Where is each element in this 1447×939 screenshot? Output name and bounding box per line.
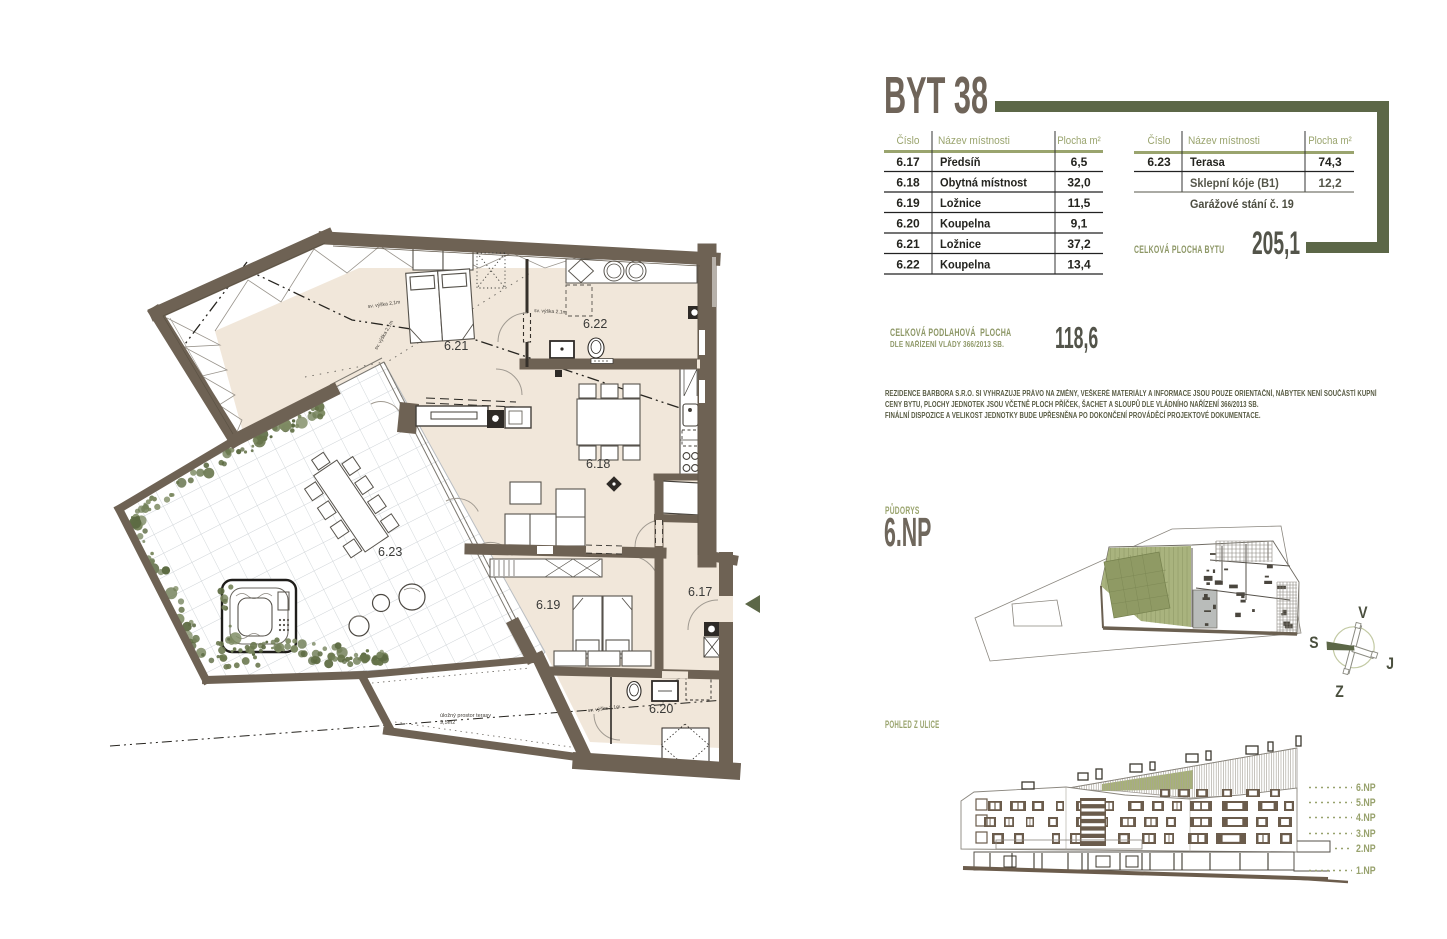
svg-text:6.22: 6.22 xyxy=(896,258,920,272)
svg-text:12,2: 12,2 xyxy=(1318,176,1342,190)
svg-text:6.20: 6.20 xyxy=(649,702,673,716)
svg-text:Předsíň: Předsíň xyxy=(940,157,980,169)
svg-text:9,1: 9,1 xyxy=(1071,217,1088,231)
svg-text:Obytná místnost: Obytná místnost xyxy=(940,177,1027,189)
svg-text:Sklepní kóje (B1): Sklepní kóje (B1) xyxy=(1190,178,1279,190)
svg-text:Plocha m²: Plocha m² xyxy=(1308,136,1352,148)
svg-text:6.17: 6.17 xyxy=(688,585,712,599)
svg-text:6.20: 6.20 xyxy=(896,217,920,231)
svg-text:6.18: 6.18 xyxy=(586,457,610,471)
svg-text:6.17: 6.17 xyxy=(896,155,920,169)
svg-text:Ložnice: Ložnice xyxy=(940,239,982,251)
svg-text:74,3: 74,3 xyxy=(1318,155,1342,169)
svg-text:6,5: 6,5 xyxy=(1071,155,1088,169)
svg-text:6.23: 6.23 xyxy=(1147,155,1171,169)
svg-text:Koupelna: Koupelna xyxy=(940,218,991,230)
svg-text:6.19: 6.19 xyxy=(896,196,920,210)
svg-text:6.19: 6.19 xyxy=(536,598,560,612)
svg-text:6.22: 6.22 xyxy=(583,317,607,331)
svg-text:Název místnosti: Název místnosti xyxy=(938,135,1010,147)
svg-text:6.21: 6.21 xyxy=(444,339,468,353)
svg-text:Číslo: Číslo xyxy=(1147,134,1170,148)
svg-text:Koupelna: Koupelna xyxy=(940,259,991,271)
svg-text:6.23: 6.23 xyxy=(378,545,402,559)
svg-text:Plocha m²: Plocha m² xyxy=(1057,136,1101,148)
svg-text:37,2: 37,2 xyxy=(1067,237,1091,251)
svg-text:Číslo: Číslo xyxy=(896,134,919,148)
svg-text:9,5m2: 9,5m2 xyxy=(440,720,455,726)
svg-text:6.18: 6.18 xyxy=(896,176,920,190)
svg-text:S: S xyxy=(1309,634,1318,653)
svg-text:Terasa: Terasa xyxy=(1190,157,1225,169)
svg-text:32,0: 32,0 xyxy=(1067,176,1091,190)
svg-text:V: V xyxy=(1358,604,1368,623)
svg-text:J: J xyxy=(1386,655,1394,674)
svg-text:Název místnosti: Název místnosti xyxy=(1188,135,1260,147)
svg-text:6.21: 6.21 xyxy=(896,237,920,251)
svg-text:Ložnice: Ložnice xyxy=(940,198,982,210)
svg-text:úložný prostor terasy: úložný prostor terasy xyxy=(440,713,491,719)
svg-text:Z: Z xyxy=(1335,683,1344,702)
svg-text:13,4: 13,4 xyxy=(1067,258,1091,272)
svg-text:Garážové stání č. 19: Garážové stání č. 19 xyxy=(1190,199,1294,212)
svg-text:11,5: 11,5 xyxy=(1068,196,1091,210)
